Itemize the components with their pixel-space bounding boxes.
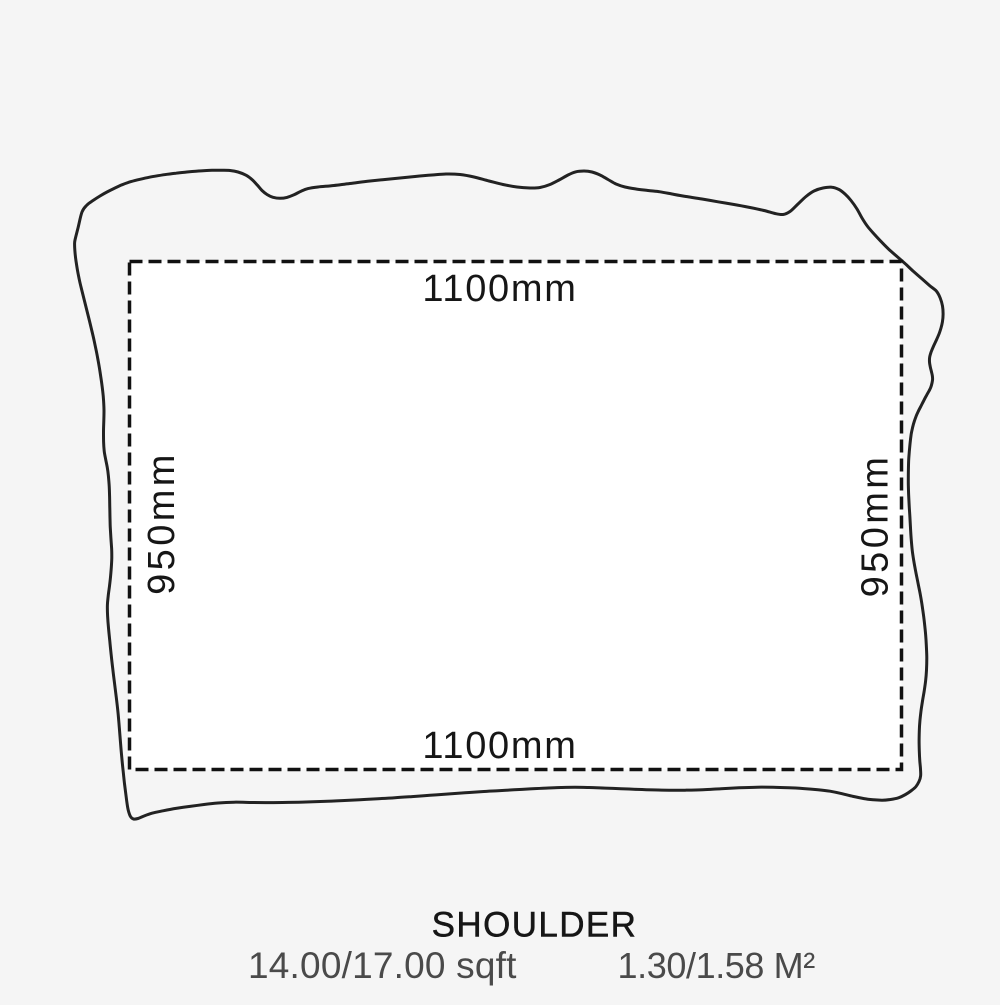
svg-text:1.30/1.58 M²: 1.30/1.58 M² [618,945,816,986]
svg-text:SHOULDER: SHOULDER [432,906,638,945]
svg-text:1100mm: 1100mm [422,725,577,767]
svg-text:14.00/17.00 sqft: 14.00/17.00 sqft [248,945,517,986]
svg-text:950mm: 950mm [855,454,897,598]
svg-text:950mm: 950mm [141,451,183,595]
svg-text:1100mm: 1100mm [422,268,577,310]
